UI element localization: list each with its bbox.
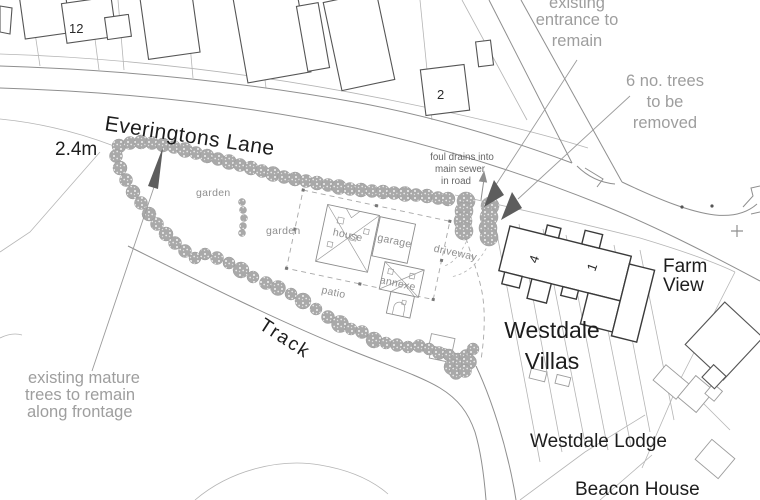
tree-symbol	[459, 365, 472, 378]
beacon-house-building	[685, 302, 760, 380]
building	[695, 439, 735, 478]
tree-symbol	[310, 303, 322, 315]
tree-symbol	[467, 343, 479, 355]
svg-text:removed: removed	[633, 114, 697, 132]
site-plan-drawing: house garage annexe patio driveway Everi…	[0, 0, 760, 500]
building	[323, 0, 395, 91]
westdale-lodge-label: Westdale Lodge	[530, 431, 667, 452]
building-no2	[420, 64, 469, 115]
survey-cross	[731, 225, 743, 237]
tree-symbol	[295, 293, 311, 309]
svg-text:trees to remain: trees to remain	[25, 386, 135, 404]
tree-symbol	[211, 252, 224, 265]
svg-text:foul drains into: foul drains into	[430, 152, 494, 163]
building	[0, 6, 12, 34]
tree-symbol	[247, 271, 259, 283]
tree-symbol	[233, 262, 249, 278]
building	[105, 14, 132, 39]
site-plan-page: house garage annexe patio driveway Everi…	[0, 0, 760, 500]
beacon-house-label: Beacon House	[575, 479, 700, 500]
plot-number-2: 2	[437, 87, 444, 102]
svg-text:Farm: Farm	[663, 256, 707, 277]
foul-drain-arrow	[480, 172, 487, 200]
tree-symbol	[441, 192, 455, 206]
svg-text:View: View	[663, 275, 704, 296]
entrance-note: existing entrance to remain	[536, 0, 619, 50]
road-fork-right2	[751, 212, 760, 214]
tree-symbol	[199, 248, 211, 260]
svg-text:in road: in road	[441, 176, 471, 187]
tree-symbol	[271, 281, 286, 296]
tree-symbol	[239, 199, 246, 206]
dimension-label: 2.4m	[55, 139, 97, 160]
farm-view-label: Farm View	[663, 256, 707, 296]
tree-symbol	[113, 161, 127, 175]
svg-text:existing mature: existing mature	[28, 369, 140, 387]
svg-text:entrance to: entrance to	[536, 11, 619, 29]
trees-removed-note: 6 no. trees to be removed	[626, 72, 704, 132]
tree-symbol	[239, 230, 246, 237]
tree-symbol	[455, 222, 473, 240]
svg-text:main sewer: main sewer	[435, 164, 486, 175]
tree-symbol	[345, 323, 357, 335]
tree-symbol	[126, 185, 140, 199]
road-fork-right	[743, 186, 760, 207]
svg-text:Westdale: Westdale	[504, 317, 599, 343]
westdale-villas-label: Westdale Villas	[504, 317, 599, 374]
road-stud	[680, 205, 683, 208]
garden-label-east: garden	[266, 225, 301, 237]
building	[476, 40, 494, 67]
tree-symbol	[223, 257, 235, 269]
tree-symbol	[391, 339, 404, 352]
tree-symbol	[402, 341, 414, 353]
tree-symbol	[380, 337, 392, 349]
tree-symbol	[480, 228, 498, 246]
svg-text:Villas: Villas	[525, 348, 580, 374]
mature-trees-leader-line	[92, 187, 154, 371]
plot-number-12: 12	[69, 21, 83, 36]
track-south-edge	[128, 246, 486, 500]
road-stud	[710, 204, 713, 207]
lodge-beacon-buildings	[653, 302, 760, 479]
building	[140, 0, 200, 59]
tree-symbol	[240, 223, 247, 230]
patio-label: patio	[320, 284, 346, 301]
tree-symbol	[110, 150, 123, 163]
porch-outline	[386, 292, 414, 319]
junction-wedge	[585, 168, 603, 187]
entrance-leader-line	[490, 60, 577, 194]
lane-north-edge-east	[622, 182, 757, 215]
tree-symbol	[135, 197, 148, 210]
tree-symbol	[366, 332, 382, 348]
tree-symbol	[285, 288, 297, 300]
svg-text:along frontage: along frontage	[27, 403, 133, 421]
tree-symbol	[240, 207, 247, 214]
tree-symbol	[120, 174, 133, 187]
tree-symbol	[241, 215, 248, 222]
svg-text:remain: remain	[552, 32, 602, 50]
mature-trees-arrowhead	[148, 147, 163, 189]
svg-text:6 no. trees: 6 no. trees	[626, 72, 704, 90]
mature-trees-note: existing mature trees to remain along fr…	[25, 369, 140, 421]
track-bend-east-edge	[476, 366, 516, 500]
driveway-label: driveway	[433, 243, 479, 264]
garden-label-west: garden	[196, 187, 231, 199]
svg-text:to be: to be	[647, 93, 684, 111]
